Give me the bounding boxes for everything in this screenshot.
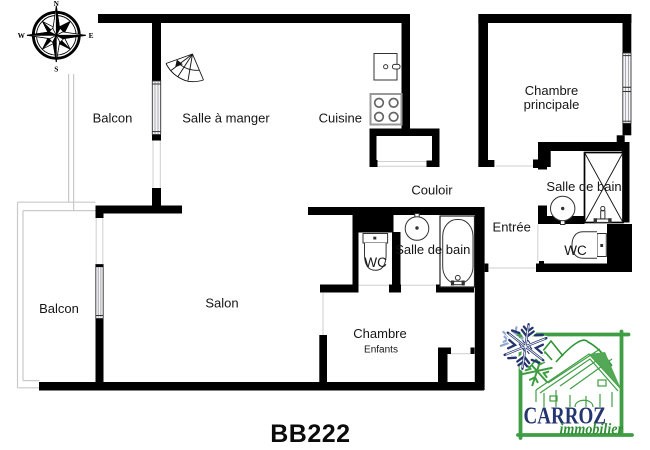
svg-text:E: E xyxy=(89,31,94,40)
svg-text:Couloir: Couloir xyxy=(411,183,453,198)
svg-text:Salle de bain: Salle de bain xyxy=(546,179,621,194)
svg-text:immobilier: immobilier xyxy=(560,421,624,438)
svg-text:Chambre: Chambre xyxy=(525,83,578,98)
svg-text:Chambre: Chambre xyxy=(353,326,406,341)
svg-text:S: S xyxy=(54,64,58,73)
svg-text:WC: WC xyxy=(364,255,387,270)
svg-text:Salle de bain: Salle de bain xyxy=(395,242,470,257)
svg-text:WC: WC xyxy=(564,243,587,258)
svg-text:Salon: Salon xyxy=(205,296,238,311)
svg-text:Balcon: Balcon xyxy=(39,301,79,316)
svg-text:Entrée: Entrée xyxy=(493,220,531,235)
svg-text:Cuisine: Cuisine xyxy=(319,111,362,126)
svg-text:Balcon: Balcon xyxy=(93,111,133,126)
svg-text:Salle à manger: Salle à manger xyxy=(182,111,270,126)
svg-text:Enfants: Enfants xyxy=(364,345,398,356)
svg-text:N: N xyxy=(54,0,60,8)
svg-text:W: W xyxy=(18,31,26,40)
svg-text:BB222: BB222 xyxy=(270,420,350,448)
svg-text:principale: principale xyxy=(524,97,580,112)
